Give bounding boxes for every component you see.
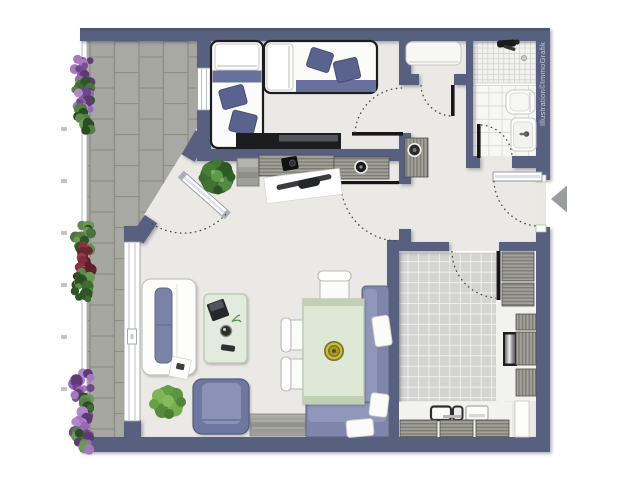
svg-text:Illustration©ImmoGrafik: Illustration©ImmoGrafik [538,42,547,126]
